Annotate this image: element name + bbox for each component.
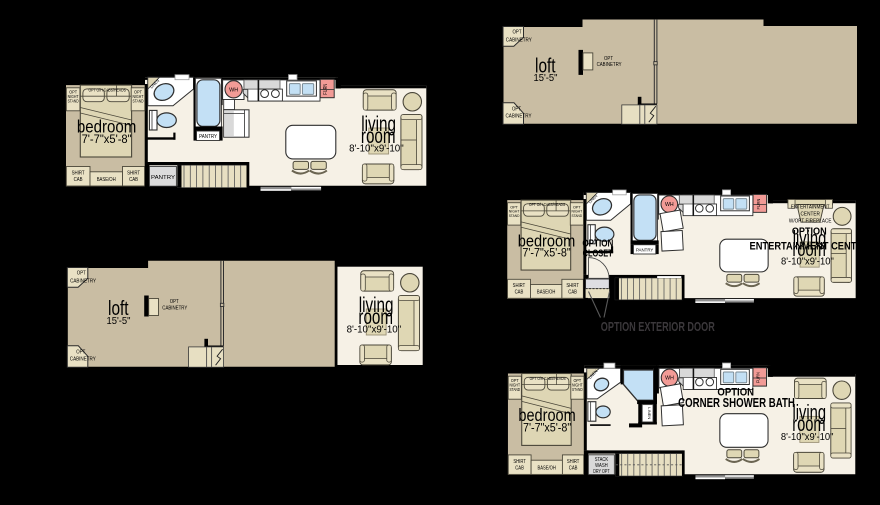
- svg-text:OPT: OPT: [76, 350, 85, 356]
- svg-text:CABINETRY: CABINETRY: [506, 114, 533, 120]
- svg-text:WH: WH: [665, 202, 674, 208]
- svg-text:STAND: STAND: [509, 213, 520, 218]
- svg-text:SHIRT: SHIRT: [513, 283, 526, 289]
- svg-text:SHIRT: SHIRT: [513, 459, 526, 465]
- svg-text:15'-5": 15'-5": [534, 72, 558, 84]
- svg-text:DRY OPT: DRY OPT: [593, 469, 609, 475]
- svg-text:OPT: OPT: [512, 107, 521, 113]
- svg-text:BASE/OH: BASE/OH: [537, 289, 556, 295]
- svg-text:CORNER SHOWER BATH: CORNER SHOWER BATH: [678, 396, 795, 410]
- svg-text:OPT O/H CABS/HEADS: OPT O/H CABS/HEADS: [88, 87, 126, 92]
- svg-text:8'-10"x9'-10": 8'-10"x9'-10": [781, 257, 834, 268]
- svg-text:7'-7"x5'-8": 7'-7"x5'-8": [522, 246, 570, 260]
- svg-text:STAND: STAND: [68, 98, 79, 103]
- svg-text:CABINETRY: CABINETRY: [162, 305, 188, 311]
- svg-text:BASE/OH: BASE/OH: [97, 177, 116, 183]
- svg-text:CABINETRY: CABINETRY: [506, 37, 533, 43]
- svg-text:OPT: OPT: [77, 271, 86, 277]
- svg-text:FURN: FURN: [756, 372, 762, 383]
- svg-text:8'-10"x9'-10": 8'-10"x9'-10": [347, 324, 402, 335]
- svg-text:FURN: FURN: [323, 83, 329, 94]
- svg-text:BASE/OH: BASE/OH: [538, 465, 557, 471]
- svg-text:CLOSET: CLOSET: [583, 249, 613, 260]
- svg-text:SHIRT: SHIRT: [127, 171, 141, 177]
- svg-text:STAND: STAND: [572, 387, 583, 392]
- svg-text:CAB: CAB: [515, 290, 524, 296]
- svg-text:CAB: CAB: [515, 466, 524, 472]
- svg-text:SHIRT: SHIRT: [566, 283, 579, 289]
- svg-text:STAND: STAND: [133, 98, 144, 103]
- svg-text:8'-10"x9'-10": 8'-10"x9'-10": [781, 432, 834, 443]
- svg-text:8'-10"x9'-10": 8'-10"x9'-10": [349, 143, 404, 154]
- svg-text:7'-7"x5'-8": 7'-7"x5'-8": [523, 420, 571, 434]
- svg-text:CENTER: CENTER: [801, 211, 820, 217]
- svg-text:PANTRY: PANTRY: [151, 175, 175, 181]
- svg-text:PANTRY: PANTRY: [636, 247, 654, 253]
- svg-text:ENTERTAINMENT: ENTERTAINMENT: [791, 205, 830, 211]
- svg-text:PANTRY: PANTRY: [199, 134, 218, 140]
- svg-text:SHIRT: SHIRT: [567, 459, 580, 465]
- svg-text:CABINETRY: CABINETRY: [597, 62, 623, 68]
- svg-text:CAB: CAB: [568, 290, 577, 296]
- svg-text:OPTION EXTERIOR DOOR: OPTION EXTERIOR DOOR: [601, 319, 715, 334]
- svg-text:CAB: CAB: [74, 177, 83, 183]
- svg-text:ENTERTAINMENT CENTER: ENTERTAINMENT CENTER: [749, 240, 869, 252]
- svg-text:OPTION: OPTION: [792, 226, 827, 237]
- svg-text:OPT O/H CABS/HEADS: OPT O/H CABS/HEADS: [530, 376, 566, 381]
- svg-text:OPT O/H CABS/HEADS: OPT O/H CABS/HEADS: [529, 202, 565, 207]
- svg-text:STAND: STAND: [572, 213, 583, 218]
- svg-text:CAB: CAB: [129, 177, 138, 183]
- svg-text:CABINETRY: CABINETRY: [70, 278, 97, 284]
- svg-text:CABINETRY: CABINETRY: [70, 357, 97, 363]
- svg-text:WH: WH: [229, 87, 238, 93]
- svg-text:OPT: OPT: [513, 30, 522, 36]
- svg-text:STAND: STAND: [509, 387, 520, 392]
- svg-text:15'-5": 15'-5": [107, 315, 131, 327]
- svg-text:OPT: OPT: [604, 56, 613, 62]
- svg-text:WH: WH: [665, 376, 674, 382]
- svg-text:FURN: FURN: [756, 198, 762, 209]
- svg-text:7'-7"x5'-8": 7'-7"x5'-8": [82, 132, 132, 146]
- svg-text:OPT: OPT: [170, 299, 179, 305]
- svg-text:LINEN: LINEN: [647, 407, 652, 419]
- svg-text:W/OPT FIREPLACE: W/OPT FIREPLACE: [789, 218, 832, 224]
- svg-text:SHIRT: SHIRT: [72, 171, 86, 177]
- svg-text:CAB: CAB: [569, 466, 578, 472]
